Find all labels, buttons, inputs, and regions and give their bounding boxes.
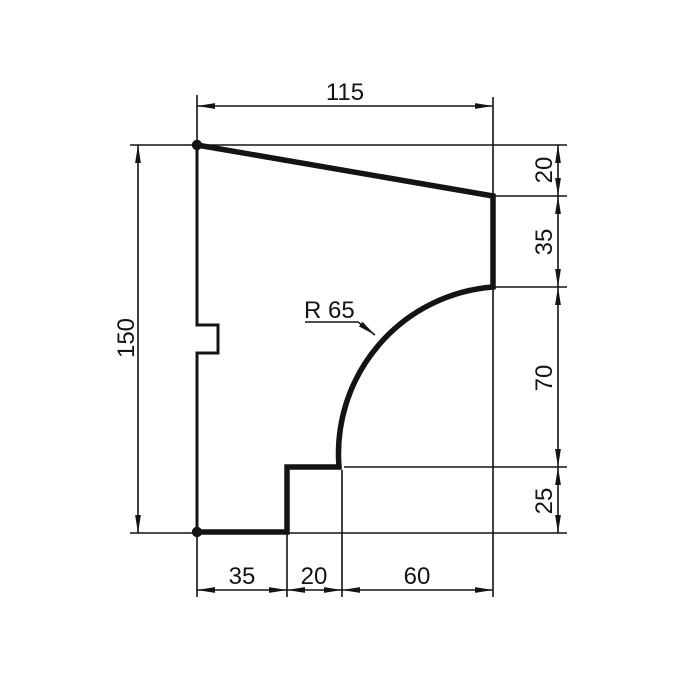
dim-label-right-bottom: 25 <box>531 488 558 515</box>
technical-drawing: 115 150 20 35 70 25 35 20 60 R 65 <box>0 0 686 686</box>
drawing-canvas: 115 150 20 35 70 25 35 20 60 R 65 <box>0 0 686 686</box>
bottom-corner-dot <box>192 527 202 537</box>
dim-label-top-width: 115 <box>326 79 364 106</box>
dim-label-bottom-middle: 20 <box>301 563 328 590</box>
dim-label-right-upper: 35 <box>531 229 558 256</box>
dim-label-bottom-left: 35 <box>229 563 256 590</box>
profile-wall-edge-with-notch <box>197 145 218 532</box>
dim-label-right-middle: 70 <box>531 365 558 392</box>
dimension-lines <box>138 106 558 590</box>
radius-label: R 65 <box>304 297 355 324</box>
dimension-labels: 115 150 20 35 70 25 35 20 60 R 65 <box>113 79 558 590</box>
profile-outline <box>197 145 493 532</box>
dim-label-total-height: 150 <box>113 318 140 358</box>
dim-label-right-top: 20 <box>531 157 558 184</box>
dim-label-bottom-right: 60 <box>404 563 431 590</box>
top-corner-dot <box>192 140 202 150</box>
